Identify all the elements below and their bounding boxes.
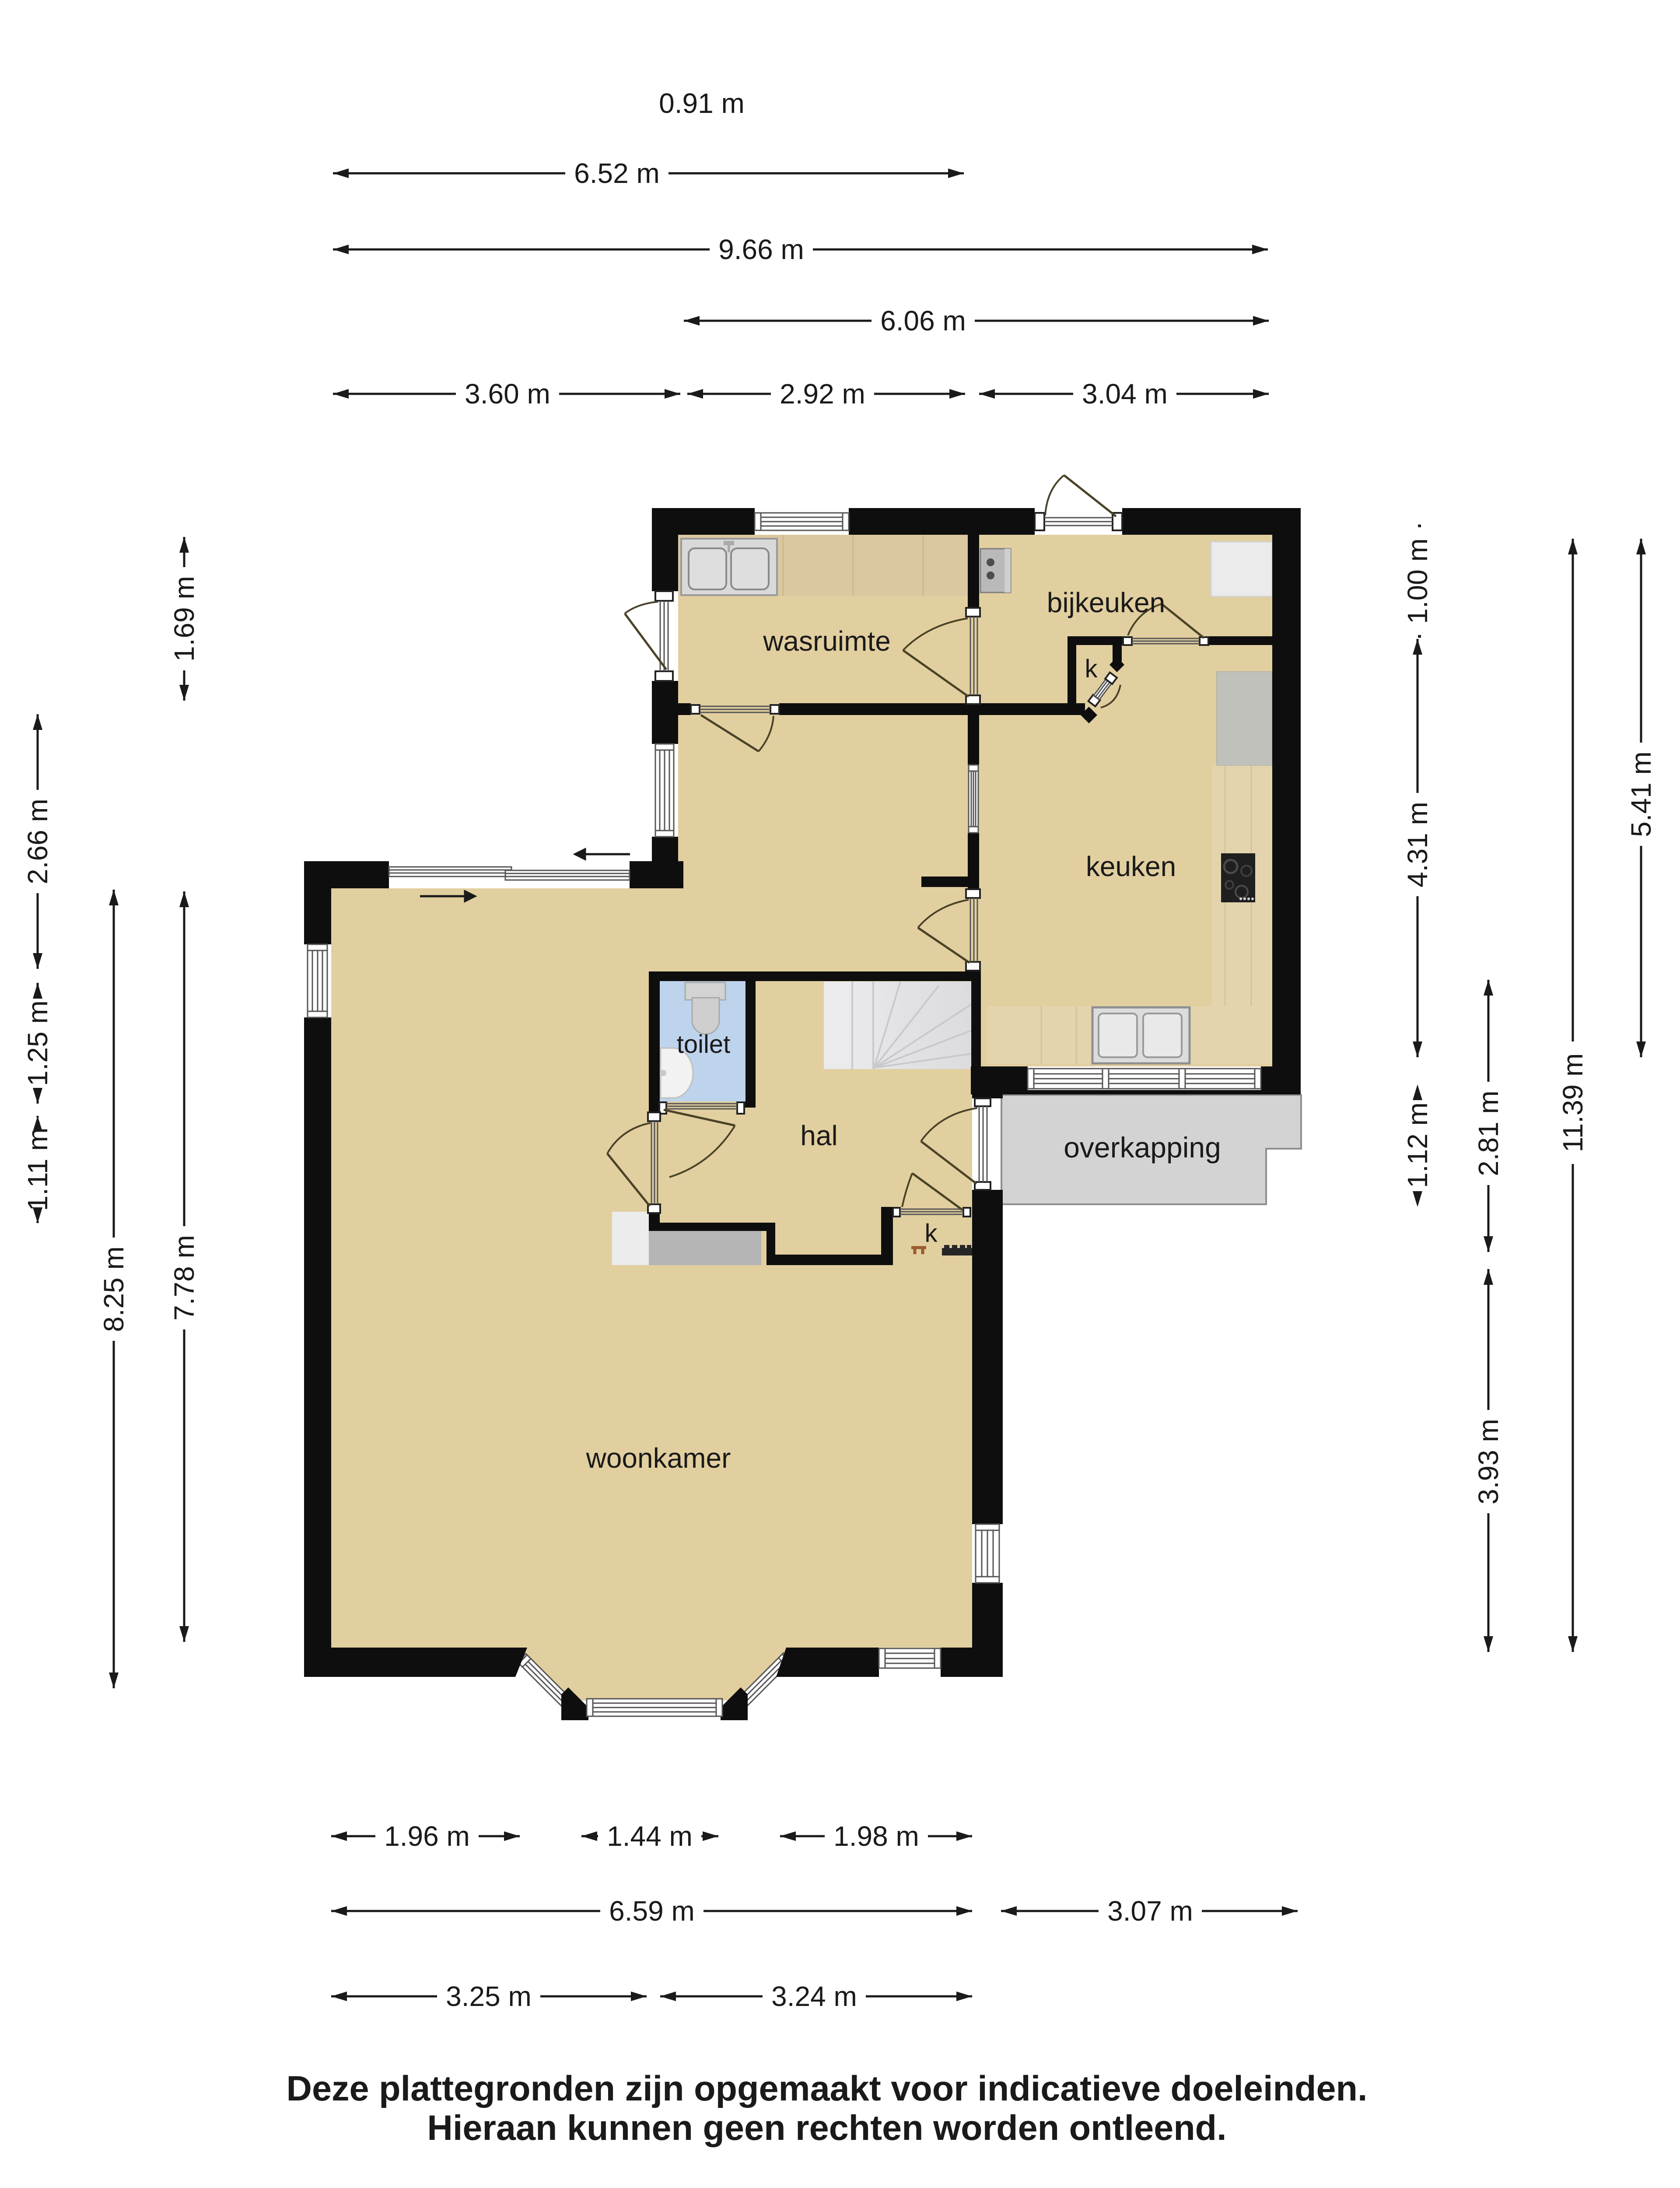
svg-text:6.52 m: 6.52 m — [574, 158, 660, 189]
svg-text:· 1.00 m ·: · 1.00 m · — [1402, 521, 1433, 641]
svg-text:3.04 m: 3.04 m — [1082, 378, 1168, 410]
svg-text:3.24 m: 3.24 m — [771, 1981, 857, 2012]
svg-text:6.59 m: 6.59 m — [609, 1895, 695, 1927]
svg-text:2.66 m: 2.66 m — [22, 799, 53, 884]
svg-text:7.78 m: 7.78 m — [168, 1235, 200, 1321]
svg-text:k: k — [925, 1219, 938, 1248]
svg-text:9.66 m: 9.66 m — [718, 234, 804, 265]
svg-text:k: k — [1085, 655, 1098, 683]
svg-text:woonkamer: woonkamer — [586, 1442, 731, 1474]
svg-text:1.44 m: 1.44 m — [607, 1820, 693, 1852]
svg-text:6.06 m: 6.06 m — [880, 305, 966, 337]
svg-text:Deze plattegronden zijn opgema: Deze plattegronden zijn opgemaakt voor i… — [287, 2069, 1368, 2108]
svg-text:4.31 m: 4.31 m — [1402, 802, 1433, 887]
svg-text:keuken: keuken — [1086, 851, 1176, 882]
svg-text:toilet: toilet — [677, 1030, 731, 1059]
svg-text:3.25 m: 3.25 m — [446, 1981, 532, 2012]
svg-text:5.41 m: 5.41 m — [1625, 751, 1657, 837]
svg-text:1.96 m: 1.96 m — [384, 1820, 470, 1852]
svg-text:1.11 m: 1.11 m — [22, 1128, 53, 1211]
svg-text:1.98 m: 1.98 m — [833, 1820, 919, 1852]
svg-text:3.93 m: 3.93 m — [1473, 1419, 1504, 1504]
svg-text:0.91 m: 0.91 m — [659, 88, 745, 119]
svg-text:11.39 m: 11.39 m — [1557, 1053, 1589, 1153]
svg-text:wasruimte: wasruimte — [763, 625, 891, 657]
svg-text:2.81 m: 2.81 m — [1473, 1090, 1504, 1176]
svg-text:1.69 m: 1.69 m — [168, 576, 200, 662]
svg-text:overkapping: overkapping — [1064, 1131, 1221, 1164]
svg-text:1.12 m: 1.12 m — [1402, 1102, 1433, 1188]
svg-text:3.60 m: 3.60 m — [465, 378, 550, 410]
svg-text:1.25 m: 1.25 m — [22, 1000, 53, 1086]
svg-text:8.25 m: 8.25 m — [98, 1246, 129, 1332]
svg-text:3.07 m: 3.07 m — [1107, 1895, 1193, 1927]
svg-text:2.92 m: 2.92 m — [780, 378, 865, 410]
svg-text:Hieraan kunnen geen rechten wo: Hieraan kunnen geen rechten worden ontle… — [427, 2108, 1226, 2148]
svg-text:hal: hal — [800, 1120, 837, 1151]
svg-text:bijkeuken: bijkeuken — [1047, 587, 1165, 618]
